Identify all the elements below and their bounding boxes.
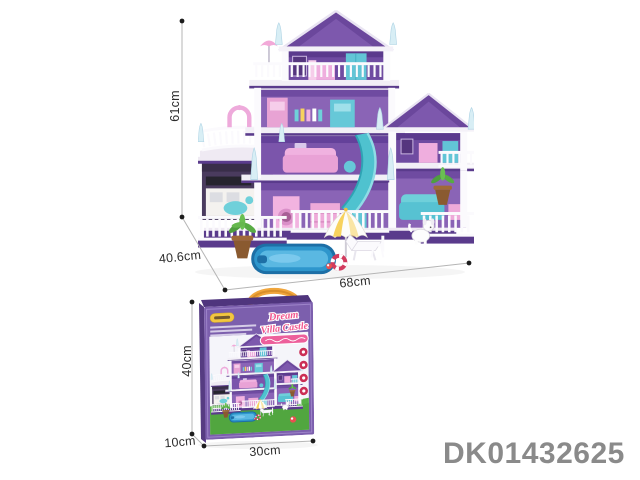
product-code: DK01432625 xyxy=(443,437,625,471)
assembled-house-photo xyxy=(198,11,476,274)
product-sheet: Dream Villa Castle 61cm 40.6cm 68cm 40cm… xyxy=(0,0,640,480)
scene-graphics: Dream Villa Castle xyxy=(0,0,640,480)
house-height-label: 61cm xyxy=(168,83,182,129)
box-front-face: Dream Villa Castle xyxy=(204,302,314,440)
box-height-label: 40cm xyxy=(180,338,194,384)
product-box-photo: Dream Villa Castle xyxy=(198,291,318,449)
